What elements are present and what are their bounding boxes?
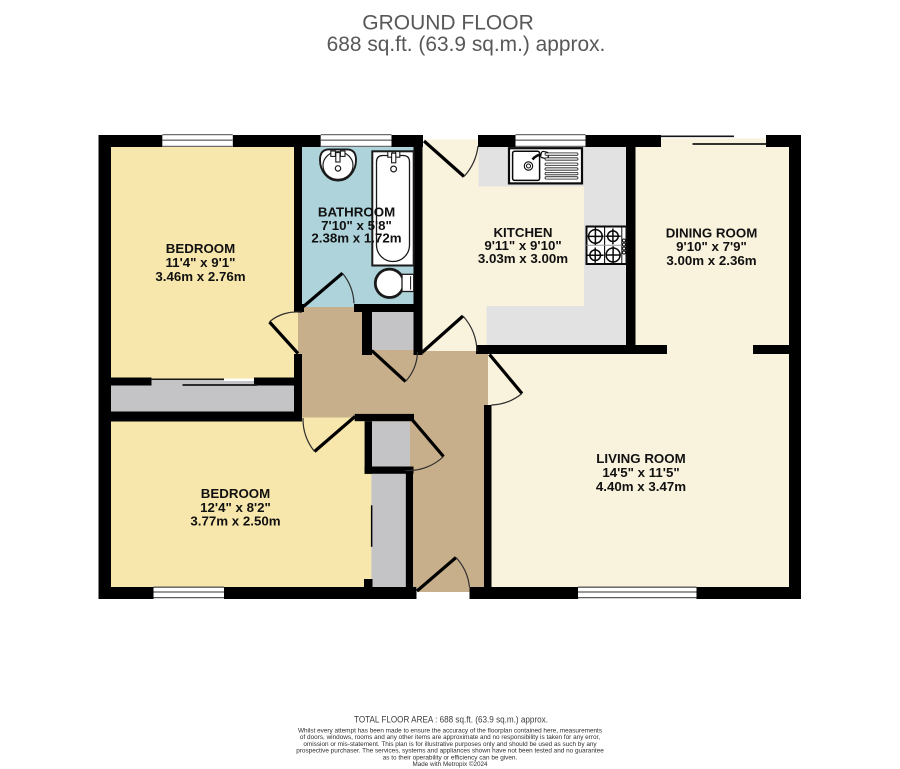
- svg-text:BEDROOM: BEDROOM: [166, 241, 235, 256]
- svg-text:11'4" x 9'1": 11'4" x 9'1": [166, 255, 236, 270]
- svg-text:TOTAL FLOOR AREA : 688 sq.ft.: TOTAL FLOOR AREA : 688 sq.ft. (63.9 sq.m…: [354, 714, 548, 725]
- svg-text:3.00m x 2.36m: 3.00m x 2.36m: [666, 253, 756, 268]
- svg-text:688 sq.ft. (63.9 sq.m.) approx: 688 sq.ft. (63.9 sq.m.) approx.: [327, 33, 606, 56]
- svg-text:4.40m x 3.47m: 4.40m x 3.47m: [596, 479, 686, 494]
- svg-text:BEDROOM: BEDROOM: [201, 486, 270, 501]
- svg-text:GROUND FLOOR: GROUND FLOOR: [362, 12, 534, 35]
- svg-text:9'10" x 7'9": 9'10" x 7'9": [676, 239, 747, 254]
- svg-text:Made with Metropix ©2024: Made with Metropix ©2024: [413, 760, 488, 768]
- svg-text:3.03m x 3.00m: 3.03m x 3.00m: [478, 251, 568, 266]
- svg-text:2.38m x 1.72m: 2.38m x 1.72m: [311, 231, 401, 246]
- svg-text:14'5" x 11'5": 14'5" x 11'5": [602, 465, 679, 480]
- svg-text:12'4" x 8'2": 12'4" x 8'2": [200, 500, 271, 515]
- svg-text:3.77m x 2.50m: 3.77m x 2.50m: [190, 514, 280, 529]
- svg-text:3.46m x 2.76m: 3.46m x 2.76m: [155, 269, 245, 284]
- svg-text:LIVING ROOM: LIVING ROOM: [596, 451, 685, 466]
